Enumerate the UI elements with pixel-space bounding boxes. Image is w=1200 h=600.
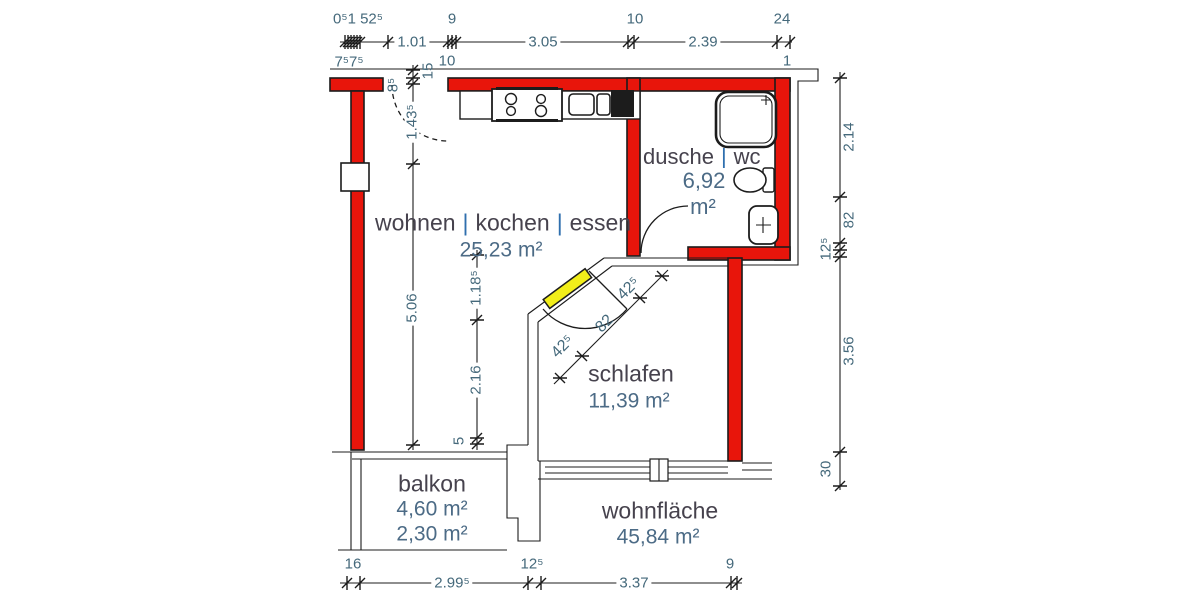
- dim-bottom-9: 9: [726, 557, 734, 572]
- sink-icon: [569, 90, 634, 117]
- stove-icon: [492, 87, 562, 122]
- dim-left-506: 5.06: [405, 290, 420, 325]
- room-area-unit-dusche: m²: [690, 196, 716, 218]
- dim-top-sub-left: 7⁵7⁵: [334, 55, 363, 70]
- dim-top-sub-1: 1: [783, 54, 791, 69]
- dim-mid-5: 5: [452, 437, 467, 445]
- dim-right-125: 12⁵: [819, 238, 834, 261]
- dim-right-82: 82: [842, 209, 857, 232]
- dim-top-sub-10: 10: [439, 54, 456, 69]
- dim-top-305: 3.05: [525, 35, 560, 50]
- dim-top-9: 9: [448, 12, 456, 27]
- dim-top-24: 24: [774, 12, 791, 27]
- floorplan-drawing: [0, 0, 1200, 600]
- dim-left-143: 1.43⁵: [405, 101, 420, 142]
- dim-right-30: 30: [819, 461, 834, 478]
- washbasin-icon: [749, 206, 778, 244]
- dim-top-cluster: 0⁵1 52⁵: [333, 12, 383, 27]
- room-area-schlafen: 11,39 m²: [588, 391, 669, 412]
- room-area-wohnen: 25,23 m²: [460, 240, 543, 261]
- dim-top-101: 1.01: [394, 35, 429, 50]
- room-area-balkon-counted: 2,30 m²: [396, 524, 467, 545]
- left-wall-junction-box: [341, 163, 369, 191]
- dim-bottom-125: 12⁵: [521, 557, 544, 572]
- room-area-dusche: 6,92: [683, 170, 726, 192]
- room-label-wohnen: wohnen|kochen|essen: [375, 212, 631, 235]
- dim-mid-216: 2.16: [469, 362, 484, 397]
- dim-right-214: 2.14: [842, 119, 857, 154]
- room-label-dusche: dusche|wc: [643, 146, 776, 168]
- dim-right-356: 3.56: [842, 333, 857, 368]
- dim-bottom-337: 3.37: [616, 576, 651, 591]
- label-wohnflaeche: wohnfläche: [602, 500, 718, 523]
- floorplan-page: 0⁵1 52⁵ 9 10 24 1.01 3.05 2.39 7⁵7⁵ 10 1…: [0, 0, 1200, 600]
- bathroom-door-arc: [641, 206, 688, 253]
- room-area-balkon-total: 4,60 m²: [396, 499, 467, 520]
- dim-bottom-16: 16: [345, 557, 362, 572]
- dim-wall-15: 15: [421, 63, 436, 80]
- bedroom-door-leaf-highlight: [543, 269, 591, 309]
- dim-bottom-299: 2.99⁵: [431, 576, 472, 591]
- room-label-schlafen: schlafen: [588, 363, 674, 386]
- area-wohnflaeche: 45,84 m²: [617, 527, 700, 548]
- kitchen-counter: [460, 87, 640, 122]
- dim-mid-118: 1.18⁵: [469, 267, 484, 308]
- room-label-balkon: balkon: [398, 473, 466, 496]
- dim-top-239: 2.39: [685, 35, 720, 50]
- dim-entrance-jamb: 8⁵: [386, 78, 401, 93]
- toilet-icon: [734, 168, 774, 192]
- shower-icon: [716, 92, 776, 147]
- pillar-outline: [507, 445, 540, 541]
- bedroom-door: [543, 269, 627, 329]
- bedroom-window: [538, 459, 772, 481]
- dim-top-10: 10: [627, 12, 644, 27]
